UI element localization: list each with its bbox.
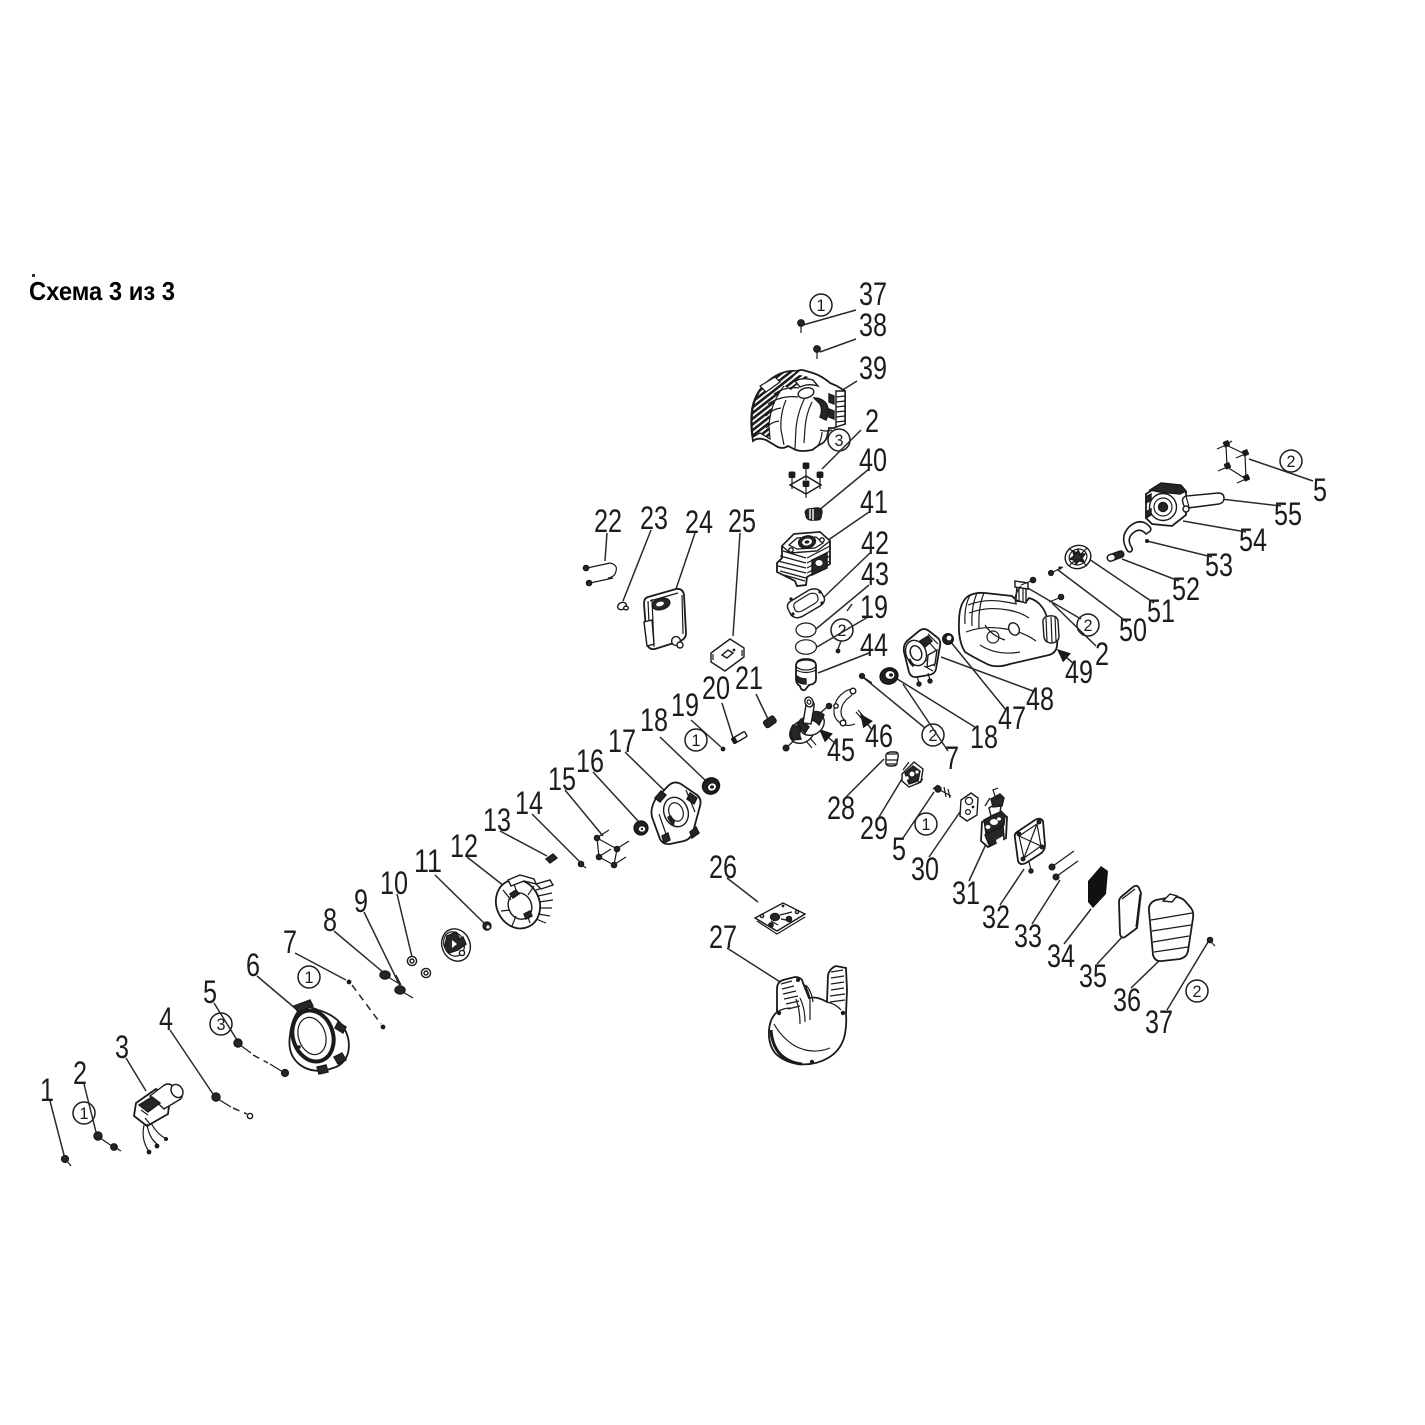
svg-text:36: 36 [1113,982,1141,1018]
svg-text:37: 37 [1145,1004,1173,1040]
svg-text:1: 1 [305,968,314,987]
svg-text:18: 18 [970,719,998,755]
svg-text:3: 3 [217,1015,226,1034]
svg-text:2: 2 [1193,982,1202,1001]
svg-text:13: 13 [483,802,511,838]
svg-text:7: 7 [945,740,959,776]
svg-text:34: 34 [1047,938,1075,974]
svg-text:24: 24 [685,504,713,540]
svg-text:48: 48 [1026,681,1054,717]
svg-text:39: 39 [859,350,887,386]
svg-text:31: 31 [952,875,980,911]
svg-text:54: 54 [1239,522,1267,558]
svg-text:20: 20 [702,670,730,706]
svg-text:40: 40 [859,442,887,478]
svg-text:18: 18 [640,702,668,738]
svg-text:11: 11 [414,843,442,879]
svg-text:1: 1 [922,815,931,834]
svg-text:9: 9 [354,883,368,919]
svg-text:32: 32 [982,899,1010,935]
svg-text:27: 27 [709,919,737,955]
svg-text:22: 22 [594,503,622,539]
svg-text:3: 3 [835,431,844,450]
svg-text:14: 14 [515,785,543,821]
svg-text:46: 46 [865,718,893,754]
svg-text:5: 5 [1313,472,1327,508]
svg-text:43: 43 [861,556,889,592]
svg-text:1: 1 [817,296,826,315]
svg-text:19: 19 [671,687,699,723]
svg-text:1: 1 [692,731,701,750]
svg-text:29: 29 [860,810,888,846]
svg-text:25: 25 [728,503,756,539]
svg-text:16: 16 [576,743,604,779]
svg-text:51: 51 [1147,593,1175,629]
svg-text:53: 53 [1205,547,1233,583]
svg-text:52: 52 [1172,571,1200,607]
svg-text:45: 45 [827,732,855,768]
svg-text:1: 1 [80,1104,89,1123]
svg-text:12: 12 [450,828,478,864]
svg-text:35: 35 [1079,958,1107,994]
svg-text:38: 38 [859,307,887,343]
svg-text:2: 2 [865,403,879,439]
svg-text:30: 30 [911,851,939,887]
svg-text:17: 17 [608,723,636,759]
svg-text:33: 33 [1014,918,1042,954]
svg-text:Схема 3 из 3: Схема 3 из 3 [29,276,175,306]
svg-text:50: 50 [1119,612,1147,648]
svg-text:15: 15 [548,761,576,797]
svg-text:2: 2 [1287,452,1296,471]
svg-text:55: 55 [1274,496,1302,532]
svg-text:1: 1 [40,1072,54,1108]
svg-text:44: 44 [860,627,888,663]
svg-text:10: 10 [380,865,408,901]
svg-text:26: 26 [709,849,737,885]
svg-text:23: 23 [640,500,668,536]
svg-text:2: 2 [1095,636,1109,672]
svg-text:2: 2 [1084,616,1093,635]
svg-text:7: 7 [283,924,297,960]
svg-text:28: 28 [827,790,855,826]
svg-text:21: 21 [735,660,763,696]
